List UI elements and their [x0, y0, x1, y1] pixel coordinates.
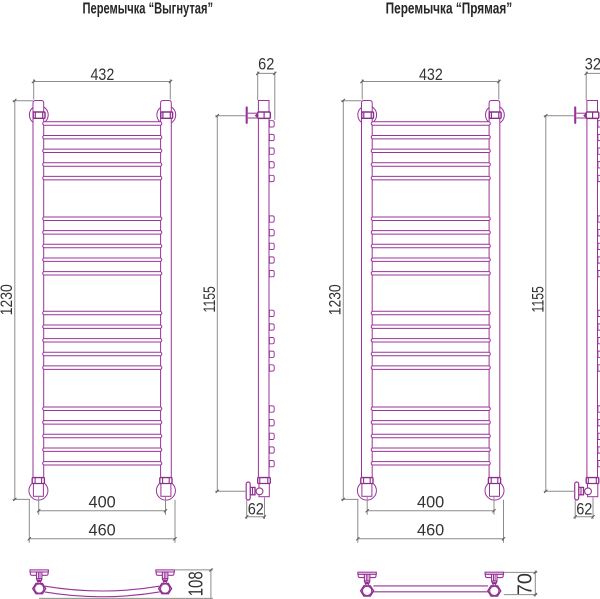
svg-text:62: 62: [248, 500, 264, 518]
svg-text:460: 460: [89, 522, 116, 540]
svg-text:1230: 1230: [0, 284, 16, 315]
svg-text:400: 400: [89, 494, 116, 512]
svg-text:1155: 1155: [530, 286, 548, 312]
svg-text:62: 62: [576, 500, 592, 518]
svg-text:400: 400: [417, 494, 444, 512]
svg-text:432: 432: [91, 66, 115, 84]
svg-text:Перемычка “Прямая”: Перемычка “Прямая”: [386, 1, 513, 18]
svg-text:460: 460: [417, 522, 444, 540]
svg-text:1155: 1155: [201, 286, 219, 312]
svg-text:Перемычка “Выгнутая”: Перемычка “Выгнутая”: [83, 1, 214, 18]
svg-text:1230: 1230: [327, 284, 345, 315]
svg-text:108: 108: [185, 571, 207, 596]
svg-text:432: 432: [419, 66, 443, 84]
svg-text:32: 32: [585, 55, 600, 73]
svg-text:70: 70: [514, 573, 536, 595]
svg-text:62: 62: [258, 55, 274, 73]
